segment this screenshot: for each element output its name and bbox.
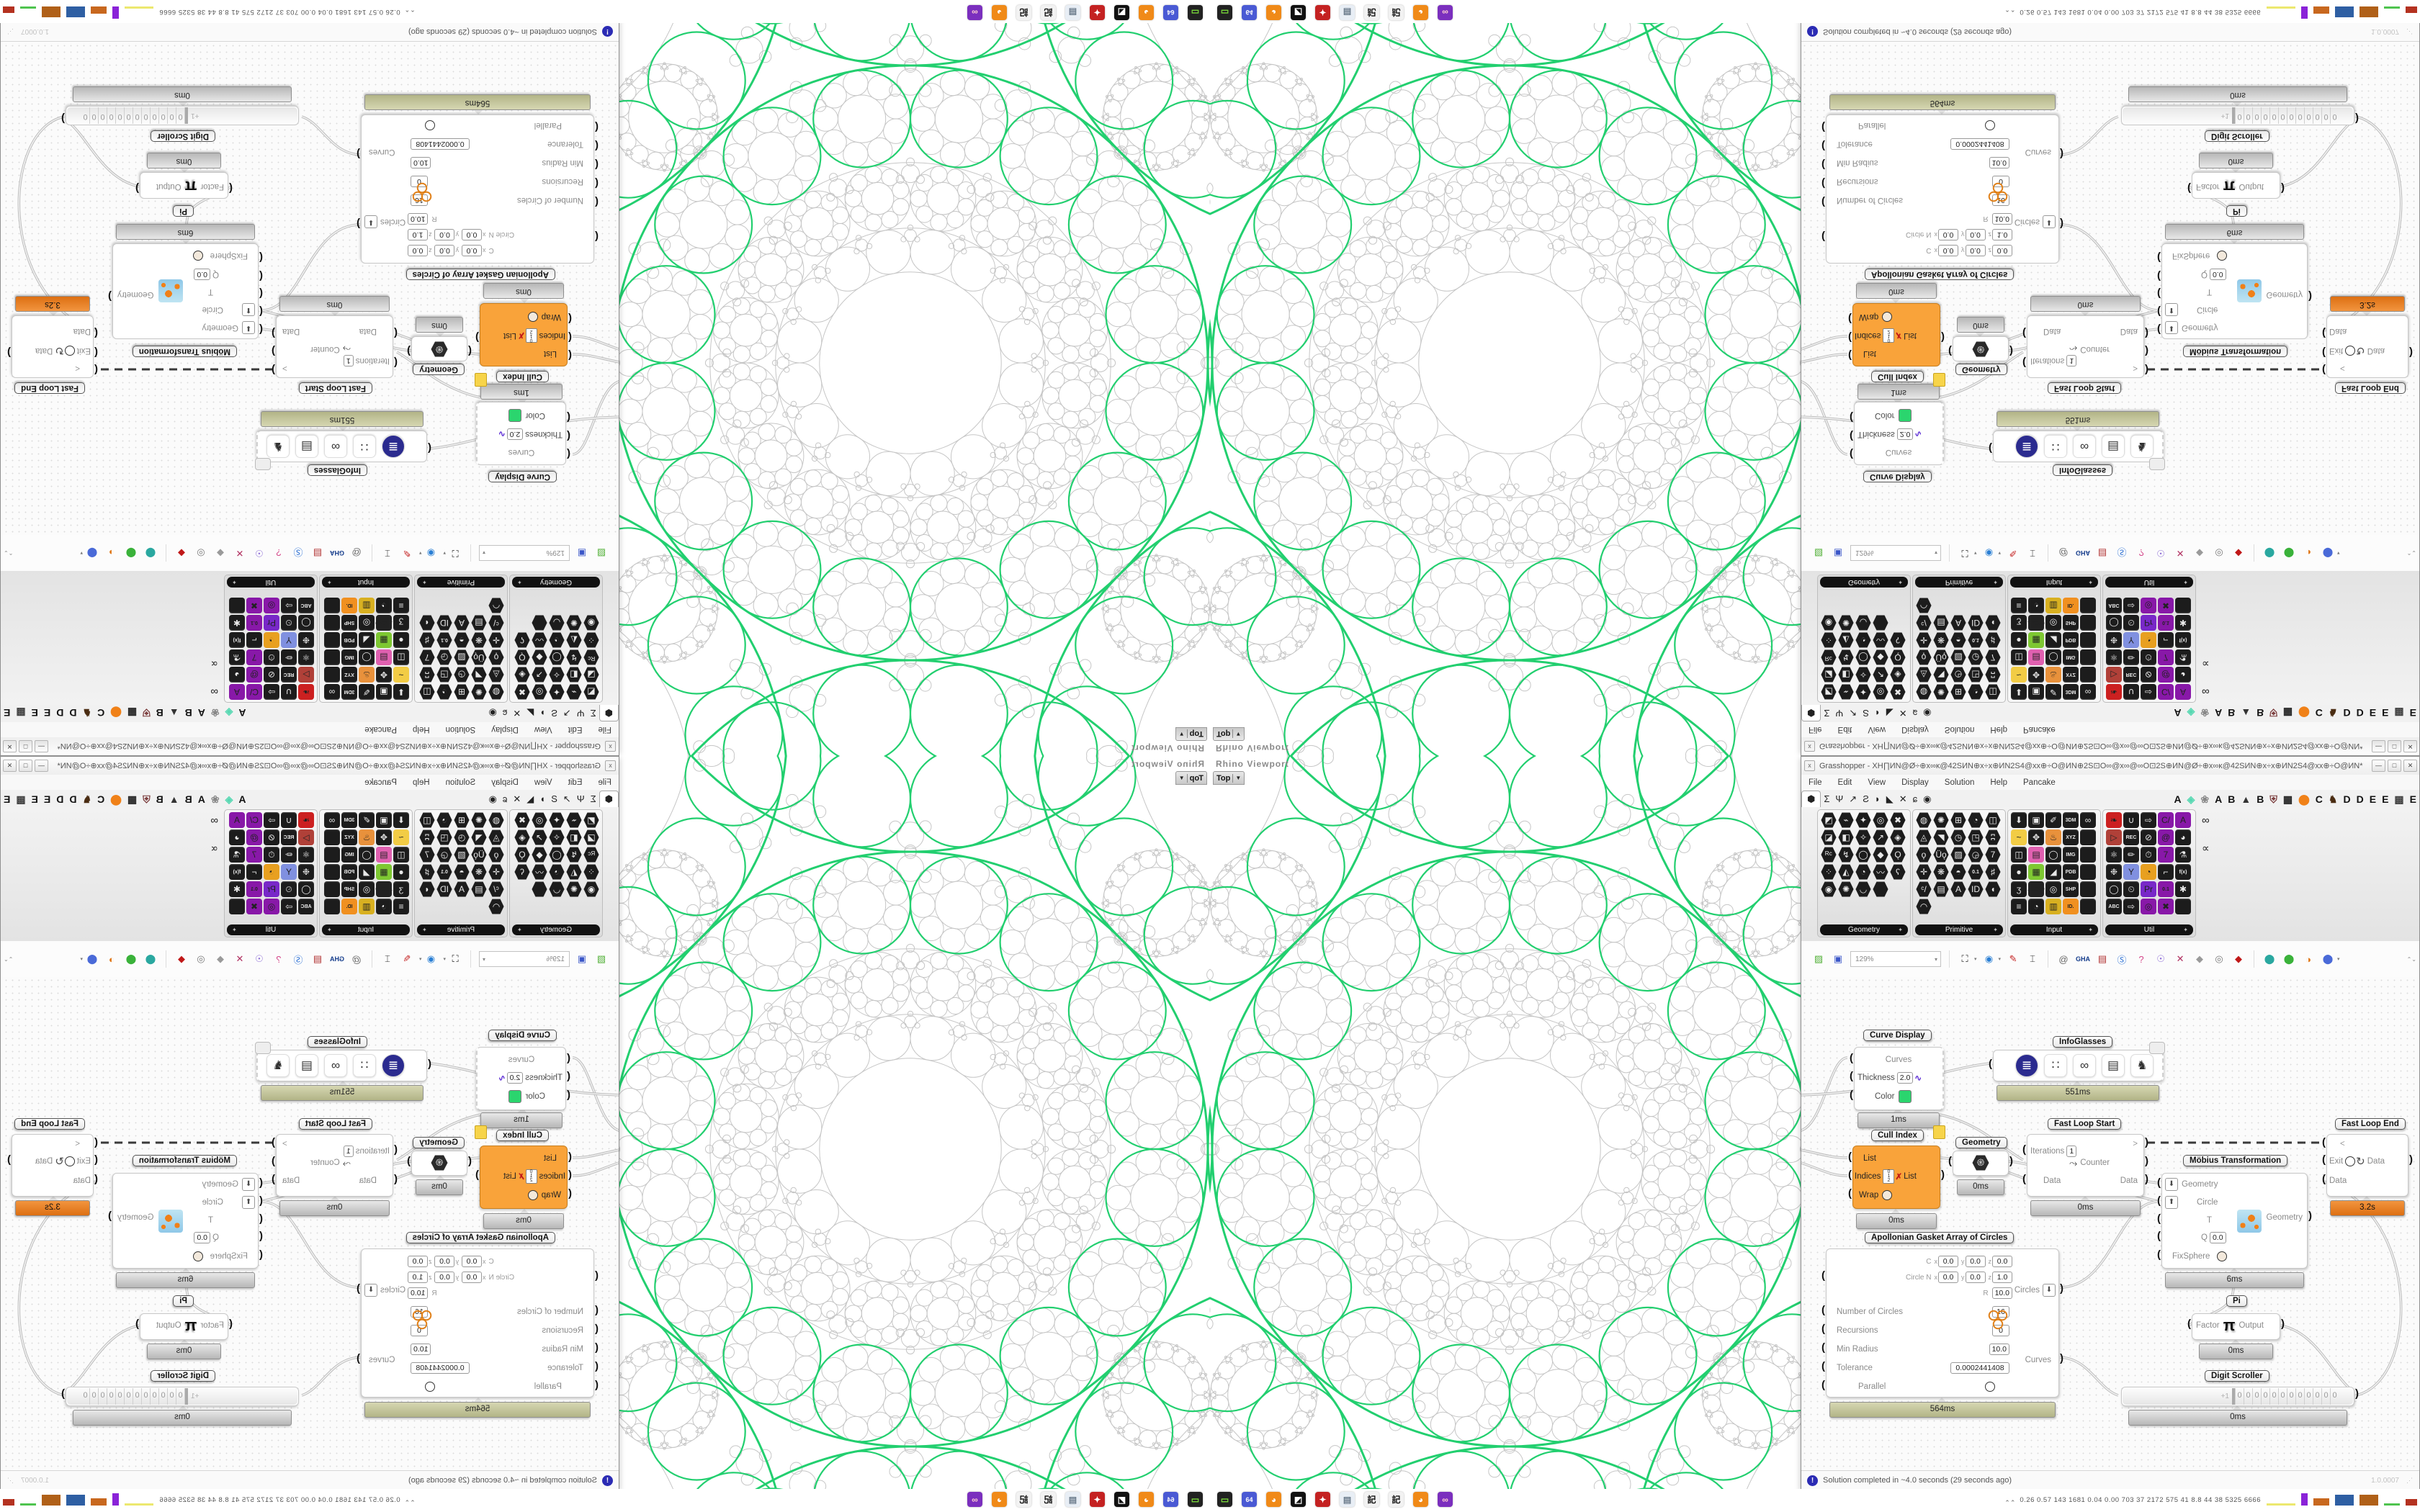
component-body[interactable]: (⬇Geometry(⬆Circle(T(Q0.0(FixSphereGeome… [2161,1173,2308,1269]
preview-eye-icon[interactable]: ◉ [1982,952,1996,966]
component-icon[interactable]: ◆ [1873,847,1888,863]
component-icon[interactable]: ~ [2011,829,2027,845]
component-icon[interactable]: A [229,684,245,700]
component-icon[interactable]: REC [2123,667,2139,683]
tab-plugin-6[interactable]: B [153,705,166,721]
tab-plugin-8[interactable]: ▦ [2280,705,2295,721]
zoom-level-combo[interactable]: 129%▾ [479,951,570,967]
bulb-icon[interactable]: ☉ [2154,952,2168,966]
component-icon[interactable]: ▤ [471,615,487,631]
component-icon[interactable]: 0.1 [1968,632,1984,648]
input-grip[interactable]: ( [595,177,599,189]
component-icon[interactable]: ✱ [2175,881,2191,897]
tab-plugin-0[interactable]: A [2172,705,2184,721]
input-grip[interactable]: ( [567,448,570,460]
close-doc-icon[interactable]: x [1804,741,1815,752]
component-icon[interactable]: Y [281,632,297,648]
gha-icon[interactable]: GHA [2076,546,2090,560]
component-label[interactable]: Digit Scroller [2205,1370,2269,1382]
output-grip[interactable]: ) [2009,345,2013,357]
canvas-scroll-arrows[interactable]: ⌃⌄ [2407,956,2416,963]
component-icon[interactable] [1873,881,1888,897]
pin-blue-icon[interactable]: ⬤ [2321,952,2335,966]
palette-panel-label[interactable]: Geometry✦ [1820,577,1908,588]
gha-icon[interactable]: GHA [330,952,344,966]
input-grip[interactable]: ( [1821,1360,1825,1372]
component-icon[interactable]: ▣ [2028,812,2044,828]
component-icon[interactable]: ◉ [583,615,599,631]
close-doc-icon[interactable]: x [1804,760,1815,771]
input-grip[interactable]: ( [1848,349,1852,361]
component-icon[interactable]: ▤ [376,847,392,863]
component-icon[interactable]: ⇨ [281,598,297,613]
tab-category-1[interactable]: Σ [588,791,599,807]
zoom-extents-icon[interactable]: ⛶ [448,546,462,560]
output-grip[interactable]: ) [357,148,360,160]
component-icon[interactable]: ♯ [419,632,435,648]
tab-plugin-2[interactable]: ❀ [2197,791,2212,807]
glyph-tile-app-icon[interactable]: 記 [1389,5,1404,20]
tab-category-2[interactable]: Ψ [574,791,588,807]
component-label[interactable]: Pi [173,205,194,217]
menu-item-solution[interactable]: Solution [1945,726,1975,734]
input-grip[interactable]: ( [568,1151,572,1163]
component-icon[interactable] [229,899,245,914]
component-icon[interactable]: ❋ [1933,632,1949,648]
firefox-app-icon[interactable]: ◕ [1139,5,1154,20]
menu-item-help[interactable]: Help [1990,778,2007,787]
component-icon[interactable]: 0.1 [2158,615,2174,631]
tab-plugin-6[interactable]: B [2254,791,2267,807]
viewport-tab-top[interactable]: Top▼ [1213,727,1245,741]
glyph-tile-app-icon[interactable]: 記 [1389,1492,1404,1507]
cross-arrows-icon[interactable]: ✕ [233,952,247,966]
input-grip[interactable]: ( [1850,430,1853,442]
menu-item-help[interactable]: Help [413,778,430,787]
component-icon[interactable]: ▦ [2028,864,2044,880]
tab-plugin-2[interactable]: ❀ [2197,705,2212,721]
palette-panel-label[interactable]: Primitive✦ [417,924,505,935]
component-icon[interactable] [2080,598,2096,613]
component-icon[interactable]: ✺ [471,684,487,700]
component-icon[interactable]: ◯ [549,649,565,665]
component-icon[interactable]: ▨ [1950,847,1966,863]
component-label[interactable]: Fast Loop Start [299,1118,372,1130]
component-body[interactable]: >)(Iterations1⤳Counter)(DataData) [2027,1134,2144,1197]
input-grip[interactable]: ( [394,356,398,369]
tab-plugin-11[interactable]: ♞ [80,791,95,807]
component-body[interactable]: (List(Indices012✗List)(Wrap [480,303,568,366]
output-grip[interactable]: ) [135,1318,139,1330]
tab-category-3[interactable]: ↗ [1846,791,1860,807]
component-icon[interactable]: ABC [2106,598,2122,613]
tray-expand-icon[interactable]: ⌃⌃ [2004,1500,2015,1506]
preview-eye-icon[interactable]: ◉ [423,952,438,966]
component-icon[interactable]: ◕ [2175,829,2191,845]
tray-expand-icon[interactable]: ⌃⌃ [405,1500,416,1506]
component-icon[interactable]: ʒ [2011,881,2027,897]
component-body[interactable]: ≣∷∞▤♞( [256,1050,427,1081]
input-grip[interactable]: ( [1850,448,1853,460]
component-icon[interactable]: ◢ [359,864,375,880]
component-icon[interactable]: 7 [246,847,262,863]
sketch-pen-icon[interactable]: ✎ [400,546,414,560]
component-icon[interactable]: ID. [341,899,357,914]
goggles-icon[interactable]: ∝ [210,657,218,670]
output-grip[interactable]: ) [2009,1155,2013,1167]
component-label[interactable]: Pi [173,1295,194,1307]
rhino-viewport[interactable]: Rhino ViewportTop▼ [1210,756,1801,1489]
component-icon[interactable]: 3DM [2063,684,2079,700]
component-icon[interactable]: f(x) [229,864,245,880]
component-icon[interactable]: ◩ [1821,812,1837,828]
component-icon[interactable]: ◎ [264,598,279,613]
comment-bubble-icon[interactable] [2149,1042,2165,1054]
component-body[interactable]: (List(Indices012✗List)(Wrap [480,1146,568,1209]
gh-canvas[interactable]: Curve Display(Curves(Thickness2.0∿(Color… [1801,41,2419,535]
component-icon[interactable]: ✏ [2123,847,2139,863]
glyph-tile-app-icon[interactable]: 記 [1364,5,1379,20]
tab-plugin-0[interactable]: A [236,705,248,721]
component-icon[interactable]: ✺ [1933,684,1949,700]
component-icon[interactable]: ◉ [583,881,599,897]
close-doc-icon[interactable]: x [605,741,616,752]
tab-category-3[interactable]: ↗ [560,791,574,807]
component-body[interactable]: (֎) [1953,1151,2009,1176]
output-grip[interactable]: ) [272,327,275,339]
component-icon[interactable]: ✐ [2045,812,2061,828]
rhino-viewport[interactable]: Rhino ViewportTop▼ [619,756,1210,1489]
menu-item-help[interactable]: Help [413,726,430,734]
tab-plugin-9[interactable]: ⬤ [107,705,125,721]
pin-orange-icon[interactable]: ◑ [104,952,119,966]
menu-item-view[interactable]: View [1868,778,1886,787]
tab-plugin-13[interactable]: D [53,791,66,807]
input-grip[interactable]: ( [2157,1194,2161,1207]
menu-item-display[interactable]: Display [491,726,519,734]
component-icon[interactable]: ◳ [1968,667,1984,683]
component-icon[interactable]: ⊞ [454,812,470,828]
input-grip[interactable]: ( [2187,182,2191,194]
tab-plugin-11[interactable]: ♞ [2326,705,2341,721]
zoom-extents-icon[interactable]: ⛶ [448,952,462,966]
notepad-app-icon[interactable]: ▤ [1065,5,1080,20]
component-icon[interactable]: ◔ [2141,864,2156,880]
component-icon[interactable]: ◡ [549,881,565,897]
component-icon[interactable]: 3DM [2063,812,2079,828]
component-icon[interactable]: C/ [2158,684,2174,700]
palette-panel-label[interactable]: Geometry✦ [1820,924,1908,935]
tab-plugin-9[interactable]: ⬤ [2295,791,2313,807]
component-label[interactable]: Geometry [413,364,465,375]
tab-plugin-3[interactable]: A [2212,791,2225,807]
input-grip[interactable]: ( [1850,1089,1853,1101]
component-icon[interactable]: ◭ [1838,632,1854,648]
tab-category-8[interactable]: ɕ [1910,791,1921,807]
tab-plugin-7[interactable]: ⛨ [2267,705,2280,721]
component-icon[interactable]: ◎ [264,899,279,914]
tab-category-9[interactable]: ◉ [1920,705,1934,721]
output-grip[interactable]: ) [407,345,411,357]
menu-item-edit[interactable]: Edit [1838,726,1852,734]
component-icon[interactable]: ID [1968,881,1984,897]
tab-plugin-10[interactable]: C [94,791,107,807]
tab-category-1[interactable]: Σ [588,705,599,721]
tab-plugin-3[interactable]: A [195,791,208,807]
component-icon[interactable] [1873,615,1888,631]
component-icon[interactable]: ◧ [566,667,582,683]
tab-category-8[interactable]: ɕ [500,791,511,807]
component-icon[interactable]: ⏲ [281,881,297,897]
tab-plugin-10[interactable]: C [2313,705,2326,721]
glyph-tile-app-icon[interactable]: 記 [1041,1492,1056,1507]
component-icon[interactable]: ❧ [2106,812,2122,828]
input-grip[interactable]: ( [2322,1136,2326,1148]
component-body[interactable]: (Curves(Thickness2.0∿(Color [1854,402,1944,465]
input-grip[interactable]: ( [1848,1151,1852,1163]
input-grip[interactable]: ( [568,1187,572,1200]
component-icon[interactable]: A [1950,615,1966,631]
maximize-button[interactable]: □ [19,760,32,772]
component-icon[interactable]: ✦ [549,812,565,828]
rings-icon[interactable]: ◎ [2212,546,2226,560]
component-label[interactable]: Curve Display [1863,471,1932,482]
component-icon[interactable]: ❋ [471,632,487,648]
rings-icon[interactable]: ◎ [194,952,208,966]
input-grip[interactable]: ( [595,230,599,243]
goggles-icon[interactable]: ∝ [210,842,218,855]
component-label[interactable]: Apollonian Gasket Array of Circles [1865,269,2014,280]
map-icon[interactable]: ▤ [310,952,325,966]
component-icon[interactable]: ● [393,632,409,648]
tab-plugin-12[interactable]: D [2340,791,2353,807]
input-grip[interactable]: ( [2157,1230,2161,1242]
component-label[interactable]: Pi [2226,1295,2247,1307]
component-icon[interactable]: ʒ [393,615,409,631]
component-label[interactable]: Fast Loop End [2335,382,2406,394]
component-icon[interactable]: ↯ [566,847,582,863]
tab-plugin-4[interactable]: B [2225,705,2238,721]
finder-icon[interactable]: Ⓢ [291,952,305,966]
output-grip[interactable]: ) [2355,1387,2359,1400]
firefox-app-icon[interactable]: ◕ [992,5,1007,20]
tab-plugin-16[interactable]: ▩ [2391,791,2406,807]
finder-icon[interactable]: Ⓢ [291,546,305,560]
component-icon[interactable]: ↯ [566,649,582,665]
component-icon[interactable]: Y [2123,632,2139,648]
component-icon[interactable]: 7 [1985,847,2001,863]
component-icon[interactable]: ▷ [2106,667,2122,683]
component-icon[interactable]: 0.1 [436,632,452,648]
output-grip[interactable]: ) [7,1153,11,1166]
output-grip[interactable]: ) [272,1173,275,1185]
input-grip[interactable]: ( [259,323,263,336]
component-icon[interactable]: ◥ [1933,667,1949,683]
component-icon[interactable]: ◔ [549,632,565,648]
open-file-icon[interactable]: ▨ [1811,546,1826,560]
component-label[interactable]: InfoGlasses [2053,464,2112,476]
component-icon[interactable]: ⌁ [566,812,582,828]
component-icon[interactable] [229,598,245,613]
component-icon[interactable]: Ǫ [514,649,530,665]
input-grip[interactable]: ( [1848,1187,1852,1200]
component-icon[interactable]: ≡ [393,598,409,613]
preview-eye-icon[interactable]: ◉ [1982,546,1996,560]
tab-category-2[interactable]: Ψ [1832,705,1846,721]
component-icon[interactable]: ✱ [229,881,245,897]
menu-item-view[interactable]: View [534,778,552,787]
component-icon[interactable]: ⬇ [393,684,409,700]
component-icon[interactable]: ✖ [2158,598,2174,613]
component-icon[interactable]: ♯ [1985,632,2001,648]
component-icon[interactable]: ID [1968,615,1984,631]
component-icon[interactable] [324,615,340,631]
component-icon[interactable]: ≡ [393,899,409,914]
component-icon[interactable]: 7 [419,649,435,665]
menu-item-pancake[interactable]: Pancake [2023,778,2056,787]
cross-arrows-icon[interactable]: ✕ [2173,952,2187,966]
tab-category-7[interactable]: ✕ [510,791,524,807]
component-body[interactable]: ≣∷∞▤♞( [256,431,427,462]
tab-category-4[interactable]: Ƨ [1860,791,1872,807]
component-body[interactable]: (<(Exit↻Data)(Data [12,315,94,378]
component-icon[interactable] [2080,649,2096,665]
component-icon[interactable] [2080,881,2096,897]
component-icon[interactable]: 〰 [1873,632,1888,648]
menu-item-file[interactable]: File [598,726,611,734]
menu-item-view[interactable]: View [534,726,552,734]
tab-plugin-5[interactable]: ▲ [166,791,182,807]
pin-teal-icon[interactable]: ⬤ [2262,952,2277,966]
component-icon[interactable]: ▦ [376,864,392,880]
input-grip[interactable]: ( [1821,1269,1825,1282]
component-icon[interactable]: Pr [2141,615,2156,631]
component-body[interactable]: (⬇Geometry(⬆Circle(T(Q0.0(FixSphereGeome… [112,243,259,339]
component-icon[interactable]: ❋ [471,864,487,880]
component-icon[interactable]: ● [2011,864,2027,880]
tab-plugin-13[interactable]: D [2354,705,2367,721]
input-grip[interactable]: ( [1989,442,1992,454]
component-icon[interactable]: ◆ [1873,649,1888,665]
component-icon[interactable]: ⚛ [298,847,314,863]
component-icon[interactable]: @ [246,829,262,845]
component-icon[interactable]: ⊞ [1950,812,1966,828]
component-icon[interactable]: ◥ [1933,829,1949,845]
viewport-tab-top[interactable]: Top▼ [1175,727,1207,741]
component-icon[interactable]: ✺ [1838,615,1854,631]
component-icon[interactable]: PDB [2063,864,2079,880]
component-label[interactable]: Pi [2226,205,2247,217]
component-icon[interactable]: ❧ [298,812,314,828]
rhino-viewport[interactable]: Rhino ViewportTop▼ [1210,23,1801,756]
zoom-level-combo[interactable]: 129%▾ [1850,951,1941,967]
component-icon[interactable]: ♨ [359,829,375,845]
output-grip[interactable]: ) [2355,112,2359,125]
output-grip[interactable]: ) [272,1136,275,1148]
gift-icon[interactable]: ? [2134,952,2148,966]
component-icon[interactable]: Pr [264,881,279,897]
menu-item-edit[interactable]: Edit [568,778,583,787]
output-grip[interactable]: ) [2060,217,2063,230]
component-icon[interactable]: ⌐ [2158,864,2174,880]
tray-expand-icon[interactable]: ⌃⌃ [405,6,416,12]
component-icon[interactable]: ✏ [2123,649,2139,665]
tab-category-7[interactable]: ✕ [1896,791,1910,807]
component-icon[interactable]: ✧ [1855,829,1871,845]
tab-plugin-11[interactable]: ♞ [80,705,95,721]
component-icon[interactable]: ▣ [2028,684,2044,700]
input-grip[interactable]: ( [259,1194,263,1207]
component-label[interactable]: InfoGlasses [308,464,367,476]
resize-grip-icon[interactable]: ⋰ [6,28,14,36]
component-icon[interactable]: 0.1 [2158,881,2174,897]
output-grip[interactable]: ) [2281,1318,2285,1330]
input-grip[interactable]: ( [94,327,98,339]
component-icon[interactable]: ▤ [2028,847,2044,863]
component-icon[interactable]: 7 [246,649,262,665]
resize-grip-icon[interactable]: ⋰ [2406,1477,2414,1485]
output-grip[interactable]: ) [272,364,275,376]
component-icon[interactable]: ▥ [359,598,375,613]
component-icon[interactable]: ◔ [2028,598,2044,613]
component-icon[interactable]: ◔ [436,812,452,828]
component-icon[interactable]: ◎ [532,812,547,828]
component-icon[interactable]: ◔ [2141,632,2156,648]
output-grip[interactable]: ) [2145,1155,2148,1167]
component-body[interactable]: ≣∷∞▤♞( [1993,431,2164,462]
component-icon[interactable]: ◢ [2045,864,2061,880]
component-label[interactable]: Curve Display [1863,1030,1932,1041]
component-icon[interactable]: 3DM [341,684,357,700]
input-grip[interactable]: ( [259,305,263,318]
component-icon[interactable]: ✱ [2175,615,2191,631]
component-icon[interactable]: IMG [341,847,357,863]
component-icon[interactable]: ◍ [1916,684,1932,700]
component-icon[interactable]: ◠ [488,899,504,914]
output-grip[interactable]: ) [2145,364,2148,376]
component-icon[interactable]: ✖ [246,899,262,914]
component-icon[interactable]: ◬ [488,667,504,683]
component-icon[interactable]: ✺ [1838,881,1854,897]
bulb-icon[interactable]: ☉ [252,546,266,560]
component-icon[interactable]: ◍ [1916,812,1932,828]
menu-item-file[interactable]: File [1809,726,1822,734]
tray-expand-icon[interactable]: ⌃⌃ [2004,6,2015,12]
tab-category-5[interactable]: ◗ [537,791,548,807]
map-icon[interactable]: ▤ [310,546,325,560]
component-icon[interactable]: ʕ [514,632,530,648]
input-grip[interactable]: ( [567,1070,570,1082]
tab-plugin-7[interactable]: ⛨ [140,705,153,721]
component-icon[interactable]: ❉ [298,632,314,648]
remote-icon[interactable]: @ [2056,546,2071,560]
component-icon[interactable]: ✛ [488,632,504,648]
input-grip[interactable]: ( [1821,196,1825,208]
palette-panel-label[interactable]: Util✦ [227,577,315,588]
component-icon[interactable]: ∞ [324,812,340,828]
component-icon[interactable]: ♯ [1985,864,2001,880]
input-grip[interactable]: ( [595,121,599,133]
component-icon[interactable]: ◔ [549,864,565,880]
component-icon[interactable]: ◪ [1821,667,1837,683]
hinge-icon[interactable]: ⌶ [2025,546,2040,560]
component-icon[interactable]: ◎ [2045,615,2061,631]
component-icon[interactable]: ∪ [281,684,297,700]
tab-plugin-13[interactable]: D [2354,791,2367,807]
tab-category-8[interactable]: ɕ [1910,705,1921,721]
component-icon[interactable] [2175,598,2191,613]
component-icon[interactable]: ◪ [1821,829,1837,845]
